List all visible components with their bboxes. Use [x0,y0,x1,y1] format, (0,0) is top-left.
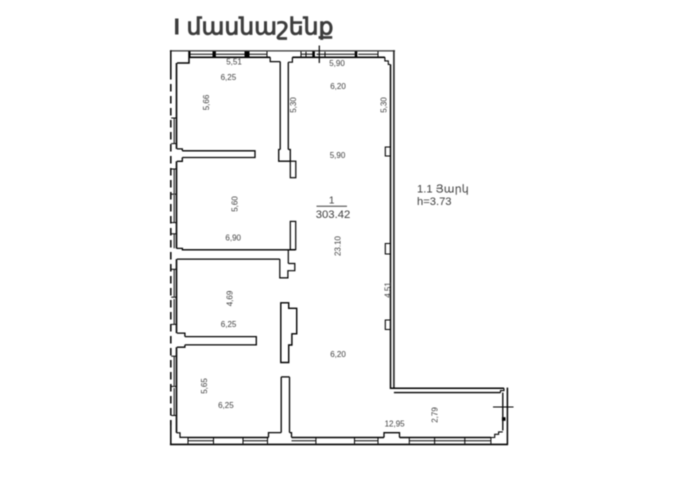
svg-text:12,95: 12,95 [385,420,406,429]
svg-text:4,51: 4,51 [383,282,392,298]
svg-text:6,25: 6,25 [221,73,237,82]
svg-text:4,69: 4,69 [226,290,235,306]
svg-text:5,51: 5,51 [226,58,242,67]
svg-text:h=3.73: h=3.73 [417,196,452,208]
svg-text:5,60: 5,60 [231,196,240,212]
svg-text:303.42: 303.42 [316,209,351,221]
svg-text:5,65: 5,65 [200,378,209,394]
svg-text:1: 1 [329,195,335,206]
svg-text:5,30: 5,30 [289,97,298,113]
svg-text:5,90: 5,90 [330,151,346,160]
svg-text:5,66: 5,66 [202,94,211,110]
svg-text:6,90: 6,90 [225,234,241,243]
svg-text:6,20: 6,20 [330,82,346,91]
svg-text:5,90: 5,90 [329,59,345,68]
svg-text:6,25: 6,25 [218,401,234,410]
svg-text:5,30: 5,30 [380,97,389,113]
svg-text:6,20: 6,20 [330,350,346,359]
svg-text:2,79: 2,79 [431,407,440,423]
svg-text:23.10: 23.10 [334,235,343,256]
svg-text:I մասնաշենք: I մասնաշենք [174,14,334,41]
svg-text:1.1 Յարկ: 1.1 Յարկ [417,183,469,195]
svg-text:6,25: 6,25 [221,320,237,329]
